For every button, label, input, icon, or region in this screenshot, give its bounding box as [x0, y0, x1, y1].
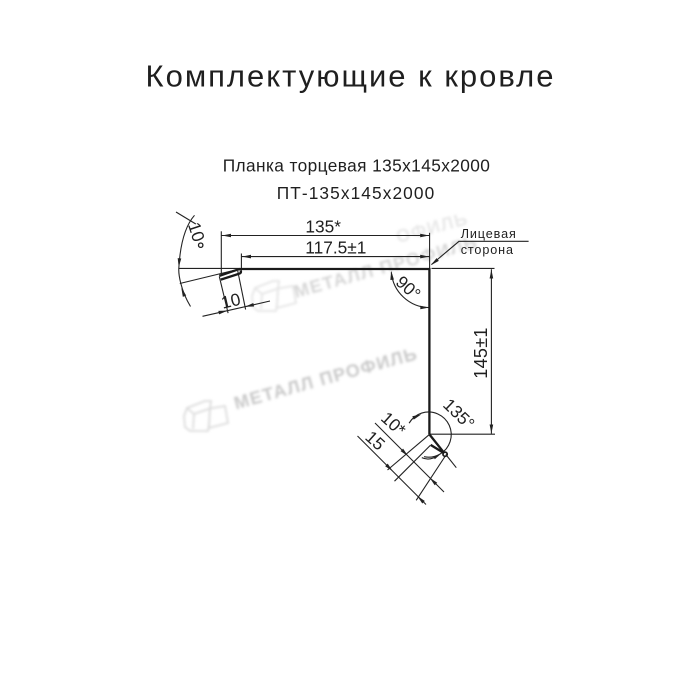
svg-text:сторона: сторона	[461, 243, 514, 257]
svg-text:135*: 135*	[305, 216, 341, 236]
svg-text:15: 15	[361, 427, 389, 455]
svg-text:ПТ-135х145х2000: ПТ-135х145х2000	[277, 183, 436, 203]
svg-text:90°: 90°	[392, 272, 425, 304]
svg-text:10: 10	[184, 220, 209, 244]
svg-text:Комплектующие к кровле: Комплектующие к кровле	[146, 59, 556, 94]
svg-text:Лицевая: Лицевая	[461, 227, 517, 241]
svg-text:10: 10	[219, 289, 242, 313]
svg-text:145±1: 145±1	[471, 327, 491, 378]
svg-text:МЕТАЛЛ ПРОФИЛЬ: МЕТАЛЛ ПРОФИЛЬ	[232, 343, 420, 413]
svg-text:135°: 135°	[439, 394, 479, 433]
svg-text:Планка торцевая 135х145х2000: Планка торцевая 135х145х2000	[223, 156, 491, 176]
svg-text:117.5±1: 117.5±1	[305, 238, 366, 258]
